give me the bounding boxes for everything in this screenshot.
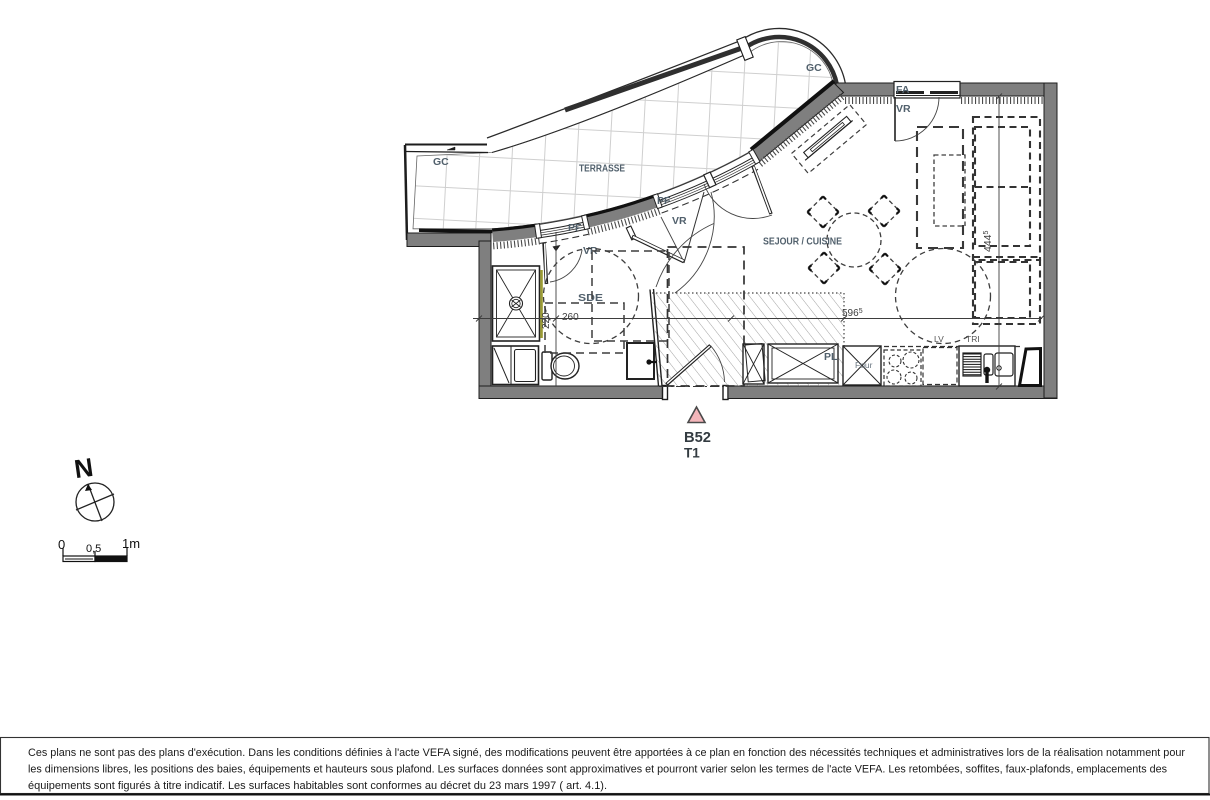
svg-text:FA: FA [896,84,910,96]
svg-text:GC: GC [806,62,822,74]
svg-text:PF: PF [657,195,671,207]
svg-text:Four: Four [855,360,873,370]
svg-text:TRI: TRI [966,334,980,344]
svg-text:220: 220 [541,312,552,329]
svg-text:B52: B52 [684,429,711,446]
svg-text:TERRASSE: TERRASSE [579,164,625,175]
svg-text:SEJOUR / CUISINE: SEJOUR / CUISINE [763,237,842,248]
svg-text:0,5: 0,5 [86,543,101,555]
svg-text:Ces plans ne sont pas des plan: Ces plans ne sont pas des plans d'exécut… [28,747,1185,759]
svg-text:PL: PL [824,351,838,363]
svg-text:1m: 1m [122,536,140,551]
svg-text:T1: T1 [684,446,700,461]
svg-text:GC: GC [433,156,449,168]
svg-text:VR: VR [672,215,687,227]
svg-text:les dimensions libres, les pos: les dimensions libres, les positions des… [28,764,1167,776]
svg-text:0: 0 [58,537,65,552]
svg-text:LV: LV [934,334,944,344]
svg-text:VR: VR [896,103,911,115]
svg-text:PF: PF [568,222,582,234]
svg-text:équipements sont figurés à tit: équipements sont figurés à titre indicat… [28,780,607,792]
svg-text:260: 260 [562,312,579,323]
